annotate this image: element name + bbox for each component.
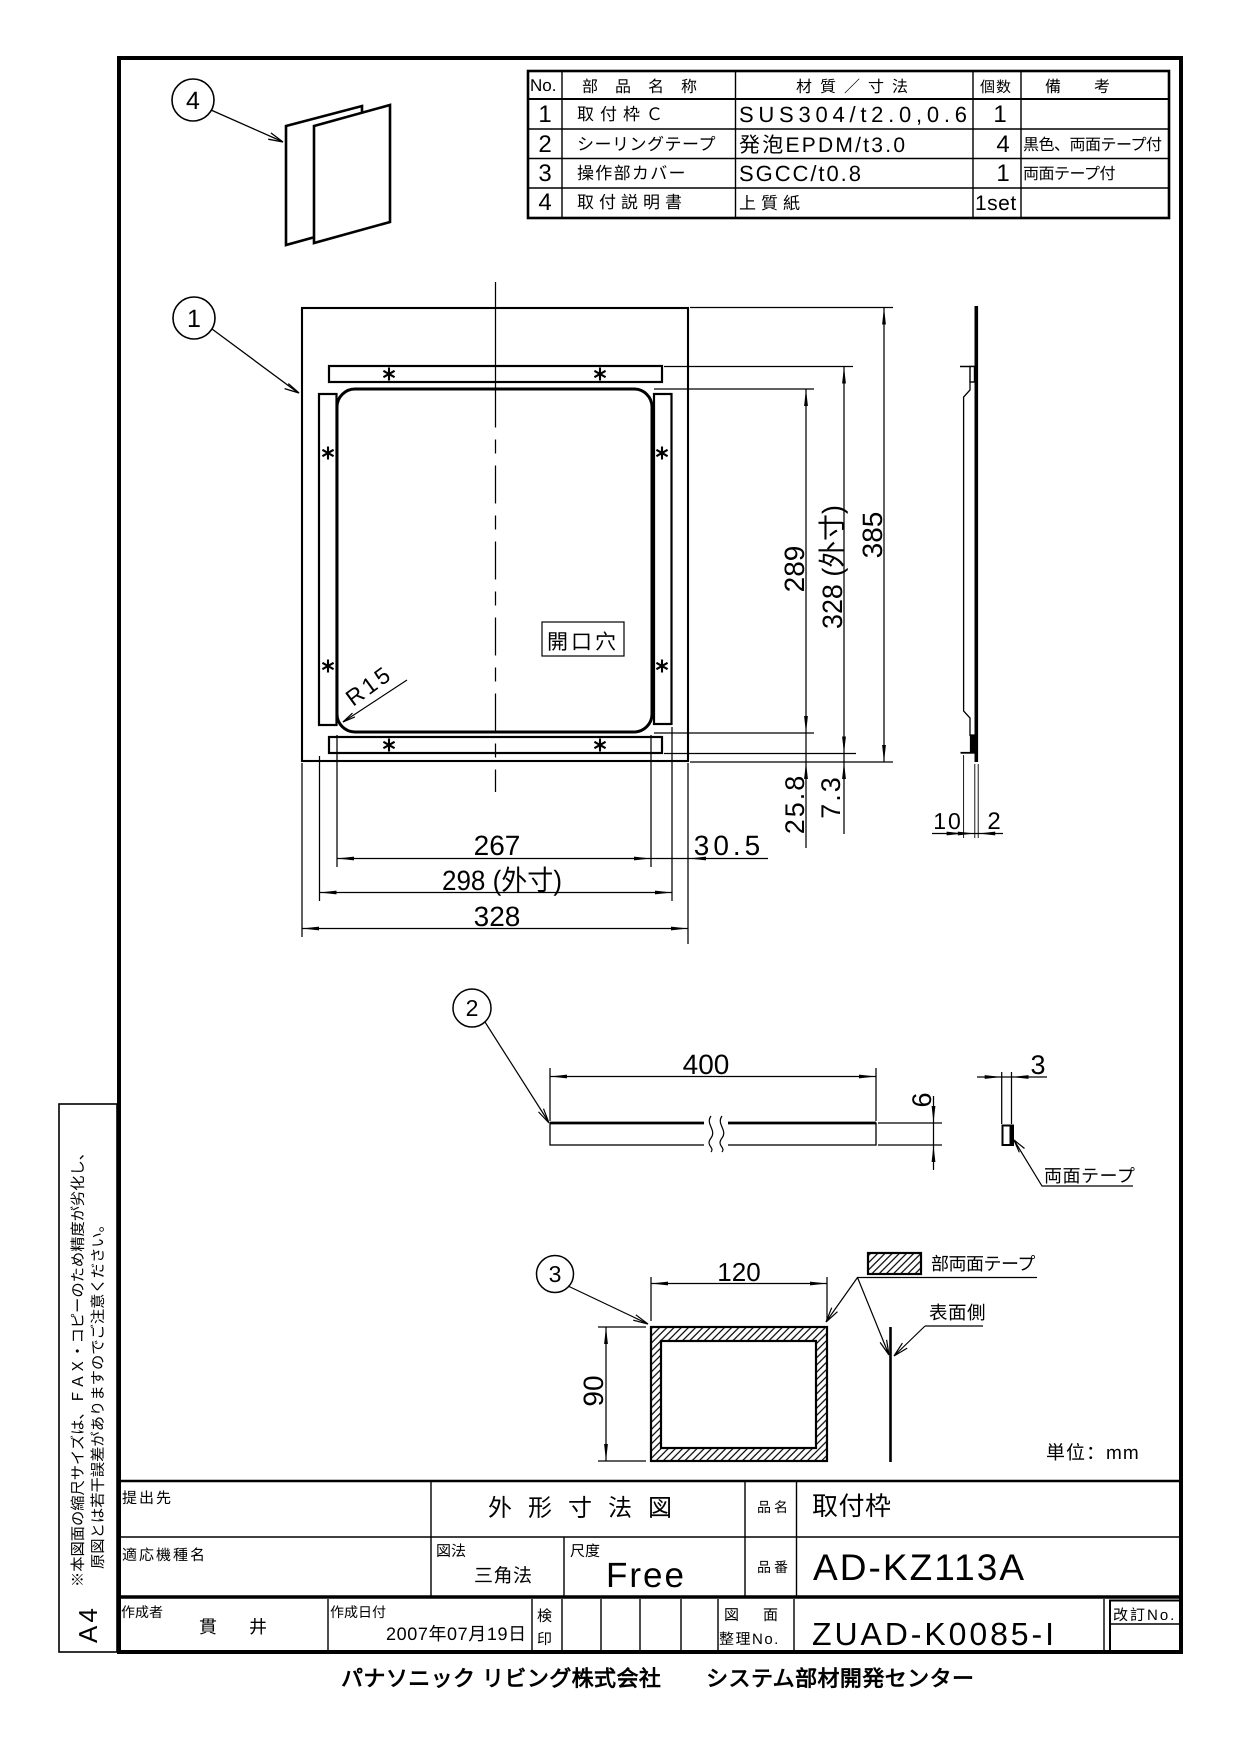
svg-text:両面テープ: 両面テープ xyxy=(1044,1166,1135,1186)
svg-text:尺度: 尺度 xyxy=(570,1543,600,1560)
svg-text:単位：mm: 単位：mm xyxy=(1046,1442,1140,1464)
svg-text:400: 400 xyxy=(683,1049,730,1080)
svg-text:3: 3 xyxy=(538,160,551,187)
svg-text:貫 井: 貫 井 xyxy=(199,1617,274,1637)
svg-text:289: 289 xyxy=(779,546,810,593)
svg-text:2007年07月19日: 2007年07月19日 xyxy=(386,1624,527,1644)
svg-text:※本図面の縮尺サイズは、ＦＡＸ・コピーのため精度が劣化し、: ※本図面の縮尺サイズは、ＦＡＸ・コピーのため精度が劣化し、 xyxy=(70,1145,87,1587)
svg-text:整理No.: 整理No. xyxy=(719,1631,780,1648)
svg-text:取付枠Ｃ: 取付枠Ｃ xyxy=(577,105,669,124)
svg-text:1set: 1set xyxy=(975,192,1017,215)
svg-text:328 (外寸): 328 (外寸) xyxy=(817,505,848,629)
svg-text:25.8: 25.8 xyxy=(780,774,810,835)
svg-text:材質／寸法: 材質／寸法 xyxy=(796,78,916,96)
svg-text:品番: 品番 xyxy=(757,1559,791,1575)
svg-text:操作部カバー: 操作部カバー xyxy=(577,164,687,183)
svg-text:ZUAD-K0085-I: ZUAD-K0085-I xyxy=(812,1616,1054,1652)
svg-text:4: 4 xyxy=(996,131,1009,158)
svg-text:120: 120 xyxy=(717,1257,760,1287)
svg-text:3: 3 xyxy=(1030,1050,1045,1080)
svg-text:2: 2 xyxy=(466,995,479,1021)
svg-text:1: 1 xyxy=(187,305,201,333)
svg-text:部品名称: 部品名称 xyxy=(582,78,714,96)
svg-text:両面テープ付: 両面テープ付 xyxy=(1023,165,1116,183)
svg-text:No.: No. xyxy=(530,76,556,95)
svg-text:328: 328 xyxy=(474,901,521,932)
svg-text:印: 印 xyxy=(537,1631,552,1648)
svg-text:298 (外寸): 298 (外寸) xyxy=(442,865,562,896)
svg-text:AD-KZ113A: AD-KZ113A xyxy=(813,1547,1024,1588)
svg-text:上質紙: 上質紙 xyxy=(739,194,805,213)
svg-text:シーリングテープ: シーリングテープ xyxy=(577,135,716,154)
svg-text:4: 4 xyxy=(538,189,551,216)
svg-text:面: 面 xyxy=(763,1607,778,1624)
svg-text:A4: A4 xyxy=(73,1605,103,1643)
svg-text:品名: 品名 xyxy=(757,1499,791,1515)
svg-text:Free: Free xyxy=(606,1556,684,1595)
svg-text:SUS304/t2.0,0.6: SUS304/t2.0,0.6 xyxy=(739,102,967,127)
svg-text:1: 1 xyxy=(996,160,1009,187)
svg-text:個数: 個数 xyxy=(980,79,1012,96)
svg-text:取付説明書: 取付説明書 xyxy=(577,193,687,212)
svg-text:部両面テープ: 部両面テープ xyxy=(931,1254,1035,1274)
svg-text:発泡EPDM/t3.0: 発泡EPDM/t3.0 xyxy=(739,134,905,157)
svg-text:パナソニック リビング株式会社 システム部材開発センター: パナソニック リビング株式会社 システム部材開発センター xyxy=(341,1666,974,1691)
svg-text:4: 4 xyxy=(186,87,200,115)
svg-text:取付枠: 取付枠 xyxy=(812,1491,892,1521)
svg-text:表面側: 表面側 xyxy=(929,1302,986,1323)
svg-text:原図とは若干誤差がありますのでご注意ください。: 原図とは若干誤差がありますのでご注意ください。 xyxy=(90,1217,107,1569)
svg-text:90: 90 xyxy=(578,1375,609,1406)
svg-text:検: 検 xyxy=(537,1608,552,1625)
svg-text:3: 3 xyxy=(549,1261,562,1287)
svg-text:1: 1 xyxy=(538,101,551,128)
svg-text:作成日付: 作成日付 xyxy=(330,1604,386,1620)
svg-text:1: 1 xyxy=(993,101,1006,128)
svg-text:図法: 図法 xyxy=(436,1543,466,1560)
svg-text:備考: 備考 xyxy=(1045,78,1143,96)
svg-text:図: 図 xyxy=(724,1607,739,1624)
svg-text:7.3: 7.3 xyxy=(816,775,846,819)
svg-text:改訂No.: 改訂No. xyxy=(1113,1607,1176,1624)
svg-text:SGCC/t0.8: SGCC/t0.8 xyxy=(739,161,861,186)
svg-text:2: 2 xyxy=(987,808,1000,835)
svg-text:三角法: 三角法 xyxy=(474,1565,533,1587)
svg-text:外形寸法図: 外形寸法図 xyxy=(488,1495,688,1522)
svg-text:2: 2 xyxy=(538,131,551,158)
svg-text:385: 385 xyxy=(857,512,888,559)
svg-text:開口穴: 開口穴 xyxy=(547,631,619,654)
svg-text:30.5: 30.5 xyxy=(694,830,765,861)
svg-text:267: 267 xyxy=(474,830,521,861)
svg-text:適応機種名: 適応機種名 xyxy=(122,1547,207,1564)
svg-text:黒色、両面テープ付: 黒色、両面テープ付 xyxy=(1023,136,1162,154)
svg-text:提出先: 提出先 xyxy=(122,1490,173,1507)
svg-text:作成者: 作成者 xyxy=(121,1604,163,1620)
svg-text:6: 6 xyxy=(907,1092,937,1107)
svg-text:10: 10 xyxy=(933,808,963,834)
